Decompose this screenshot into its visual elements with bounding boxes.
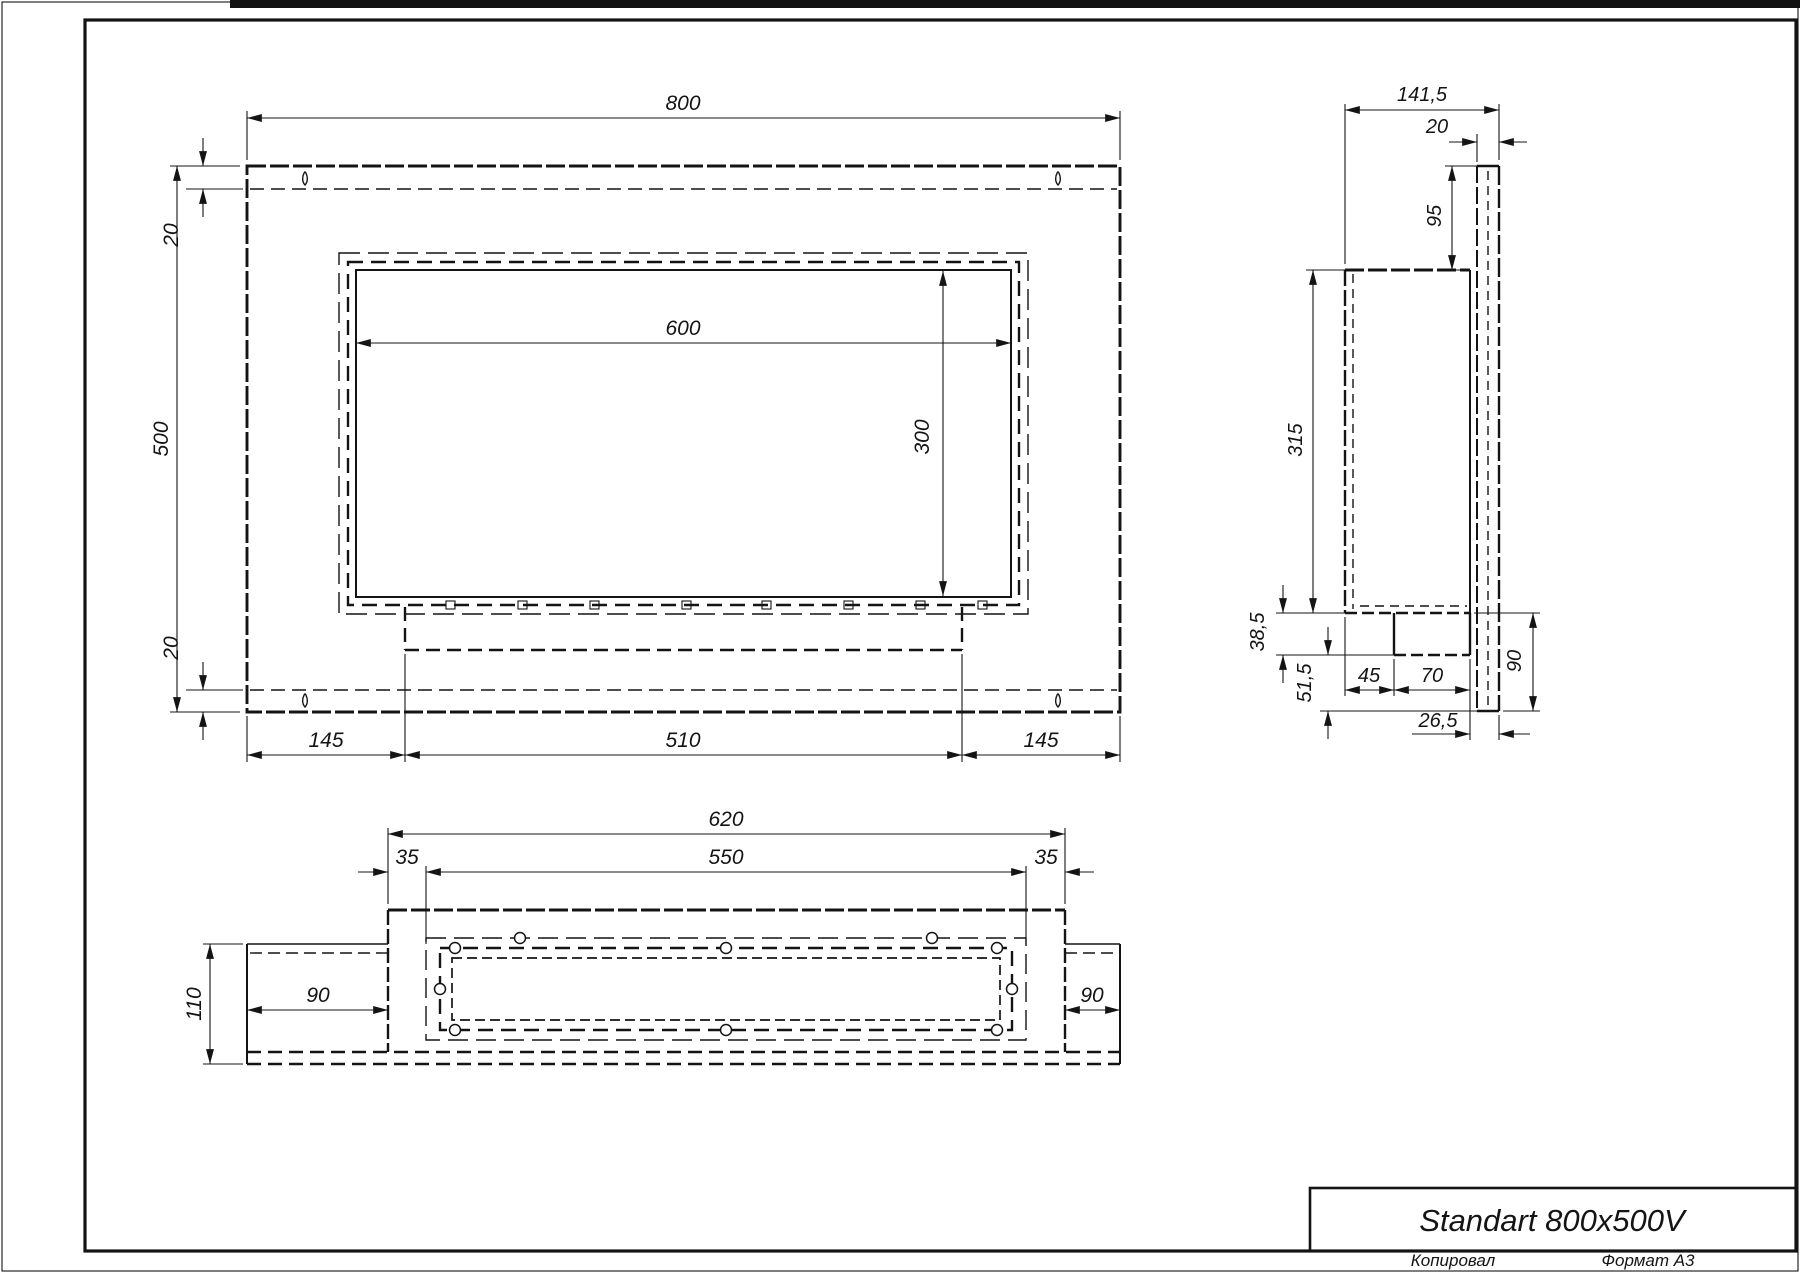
copied-label: Копировал	[1411, 1251, 1496, 1270]
dim-bottom-110: 110	[183, 944, 243, 1064]
dim-label-20-bottom: 20	[160, 636, 183, 661]
dim-label-141-5: 141,5	[1397, 84, 1448, 106]
dim-label-145-left: 145	[308, 729, 343, 752]
bottom-flange-mid	[440, 948, 1012, 1030]
title-block: Standart 800x500V Копировал Формат A3	[1310, 1188, 1796, 1270]
dim-label-20-top: 20	[160, 223, 183, 248]
dim-label-550: 550	[708, 846, 743, 869]
front-plate-outline	[247, 166, 1120, 712]
dim-side-26-5: 26,5	[1412, 710, 1530, 740]
dim-label-35-left: 35	[395, 846, 419, 869]
dim-label-70: 70	[1421, 665, 1443, 687]
dim-side-141-5: 141,5	[1345, 84, 1499, 264]
dim-label-110: 110	[183, 987, 206, 1021]
scan-top-bar	[230, 0, 1800, 8]
dim-bottom-90-left: 90	[247, 984, 388, 1010]
dim-label-500: 500	[150, 421, 173, 456]
format-label: Формат A3	[1601, 1251, 1695, 1270]
dim-label-51-5: 51,5	[1294, 663, 1316, 703]
dim-label-315: 315	[1285, 422, 1307, 456]
dim-label-300: 300	[911, 419, 934, 454]
dim-side-90: 90	[1474, 613, 1540, 711]
side-frame-plate	[1477, 166, 1499, 711]
dim-label-45: 45	[1358, 665, 1381, 687]
dim-front-20-top: 20	[160, 138, 243, 248]
dim-label-90-left: 90	[306, 984, 330, 1007]
dim-label-800: 800	[665, 92, 700, 115]
title-block-product-name: Standart 800x500V	[1419, 1203, 1688, 1238]
dim-front-500: 500	[150, 166, 240, 712]
drawing-canvas: 800 500 20 20 600	[0, 0, 1800, 1273]
keyhole-slot-top-left	[303, 172, 308, 185]
keyhole-slot-bottom-left	[303, 694, 308, 707]
dim-front-300: 300	[911, 271, 943, 596]
side-tray	[1394, 613, 1470, 655]
keyhole-slot-top-right	[1056, 172, 1061, 185]
bottom-flange-inner	[452, 958, 1000, 1020]
dim-label-90-right: 90	[1080, 984, 1104, 1007]
dim-label-600: 600	[665, 317, 700, 340]
dim-label-side-90: 90	[1504, 650, 1526, 672]
dim-label-side-20: 20	[1425, 116, 1448, 138]
dim-side-315: 315	[1276, 270, 1345, 613]
side-view: 141,5 20 95 315 38,5	[1247, 84, 1540, 740]
sheet-inner-frame	[85, 20, 1796, 1251]
dim-front-600: 600	[356, 317, 1011, 343]
page-frame	[2, 0, 1800, 1271]
dim-label-510: 510	[665, 729, 700, 752]
dim-label-145-right: 145	[1023, 729, 1058, 752]
keyhole-slot-bottom-right	[1056, 694, 1061, 707]
dim-front-20-bottom: 20	[160, 636, 243, 740]
bottom-view: 620 35 550 35 110 90 90	[183, 808, 1120, 1064]
dim-front-145-510-145: 145 510 145	[247, 654, 1120, 762]
dim-label-26-5: 26,5	[1418, 710, 1459, 732]
dim-side-95: 95	[1424, 166, 1477, 270]
dim-label-38-5: 38,5	[1247, 612, 1269, 652]
bottom-plate-strip	[247, 944, 1120, 1064]
side-firebox	[1345, 270, 1470, 613]
drawing-sheet: 800 500 20 20 600	[0, 0, 1800, 1273]
dim-bottom-550: 35 550 35	[358, 846, 1094, 944]
dim-front-800: 800	[247, 92, 1120, 160]
dim-bottom-90-right: 90	[1065, 984, 1120, 1010]
sheet-outer-border	[2, 2, 1798, 1271]
dim-label-35-right: 35	[1034, 846, 1058, 869]
dim-label-620: 620	[708, 808, 743, 831]
dim-label-95: 95	[1424, 204, 1446, 227]
dim-side-20: 20	[1425, 116, 1527, 162]
front-view: 800 500 20 20 600	[150, 92, 1120, 762]
